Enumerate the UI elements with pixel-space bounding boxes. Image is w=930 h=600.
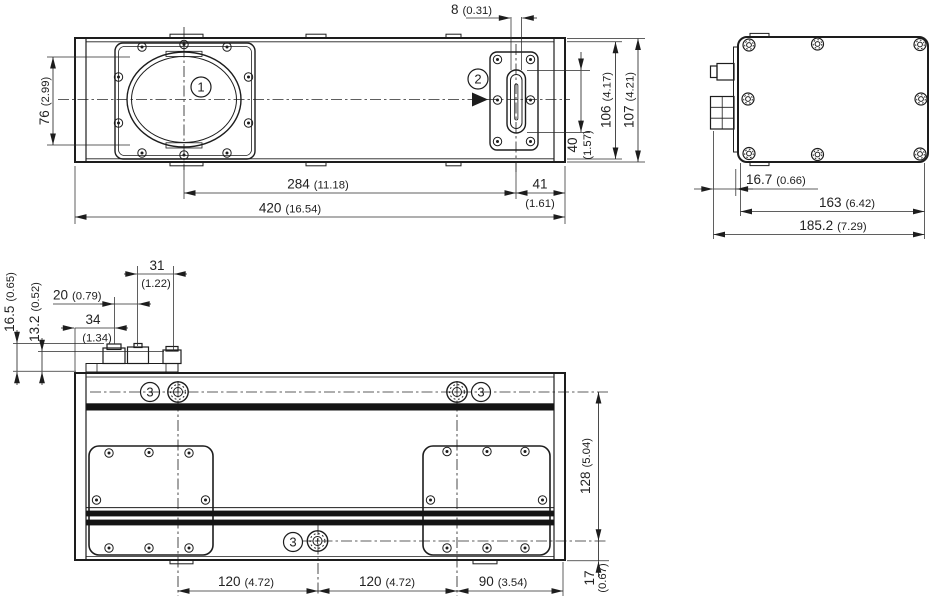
svg-text:120(4.72): 120(4.72) [218,574,274,589]
connector-3 [163,350,181,364]
access-plate-right [423,446,550,555]
svg-text:16.5(0.65): 16.5(0.65) [2,272,17,332]
svg-text:34: 34 [85,312,101,327]
mount-hole-3 [307,531,327,551]
housing-outline [75,38,565,162]
front-view: 1 2 8(0.31) [37,2,645,224]
dim-depths: 16.7(0.66) 163(6.42) 185.2(7.29) [694,131,925,239]
dim-hole-height: 128(5.04) 17 (0.67) [567,392,609,593]
svg-text:284(11.18): 284(11.18) [287,177,349,192]
side-housing-outline [738,37,928,162]
svg-text:(1.61): (1.61) [525,198,555,210]
svg-text:185.2(7.29): 185.2(7.29) [799,218,867,233]
m12-connector [711,64,735,81]
laser-direction-icon [472,93,488,107]
connector-1 [103,348,125,364]
dimensional-drawing: 1 2 8(0.31) [0,0,930,600]
dim-lengths: 284(11.18) 41 (1.61) 420(16.54) [75,163,565,224]
connector-block [711,97,735,130]
svg-text:(1.34): (1.34) [82,333,112,345]
svg-text:8(0.31): 8(0.31) [451,2,492,17]
svg-text:(1.22): (1.22) [141,278,171,290]
connector-2 [128,347,149,364]
access-plate-left [89,446,213,555]
svg-text:13.2(0.52): 13.2(0.52) [27,282,42,342]
callout-1-label: 1 [197,80,204,95]
emission-plate: 2 [468,52,538,150]
connector-group [86,344,181,373]
callout-2-label: 2 [474,72,481,87]
svg-text:16.7(0.66): 16.7(0.66) [746,172,806,187]
dim-slot-width: 8(0.31) [451,2,537,70]
callout-2: 2 [468,69,488,89]
svg-text:90(3.54): 90(3.54) [479,574,528,589]
svg-text:17: 17 [582,570,597,585]
bottom-view: 3 3 3 34 (1.34) [2,258,609,596]
svg-text:40: 40 [565,137,580,152]
dim-connector-offsets: 34 (1.34) 20(0.79) 31 (1.22) [53,258,187,371]
side-screws [742,38,927,161]
dim-slot-length: 40 (1.57) [527,52,594,160]
svg-text:31: 31 [149,258,164,273]
callout-3c: 3 [284,533,303,552]
seam-tabs [170,34,461,166]
svg-text:3: 3 [477,385,484,400]
connector-base-strip [86,364,178,373]
svg-text:41: 41 [532,177,547,192]
svg-text:106(4.17): 106(4.17) [599,72,614,128]
dim-hole-spacing: 120(4.72) 120(4.72) 90(3.54) [178,562,563,596]
svg-text:163(6.42): 163(6.42) [819,195,875,210]
svg-text:3: 3 [289,535,296,550]
svg-text:(1.57): (1.57) [582,130,594,160]
svg-text:3: 3 [146,385,153,400]
side-view: 16.7(0.66) 163(6.42) 185.2(7.29) [694,33,928,239]
dim-lens-height: 76(2.99) [37,57,130,145]
svg-text:128(5.04): 128(5.04) [578,438,593,494]
svg-text:420(16.54): 420(16.54) [259,201,322,216]
drawing-canvas: 1 2 8(0.31) [0,0,930,600]
svg-text:107(4.21): 107(4.21) [622,72,637,128]
dim-connector-heights: 16.5(0.65) 13.2(0.52) [2,272,164,385]
callout-1: 1 [191,77,211,97]
svg-text:76(2.99): 76(2.99) [37,76,52,125]
mounting-rails [87,403,555,525]
svg-text:(0.67): (0.67) [597,563,609,593]
svg-text:120(4.72): 120(4.72) [359,574,415,589]
svg-text:20(0.79): 20(0.79) [53,288,102,303]
